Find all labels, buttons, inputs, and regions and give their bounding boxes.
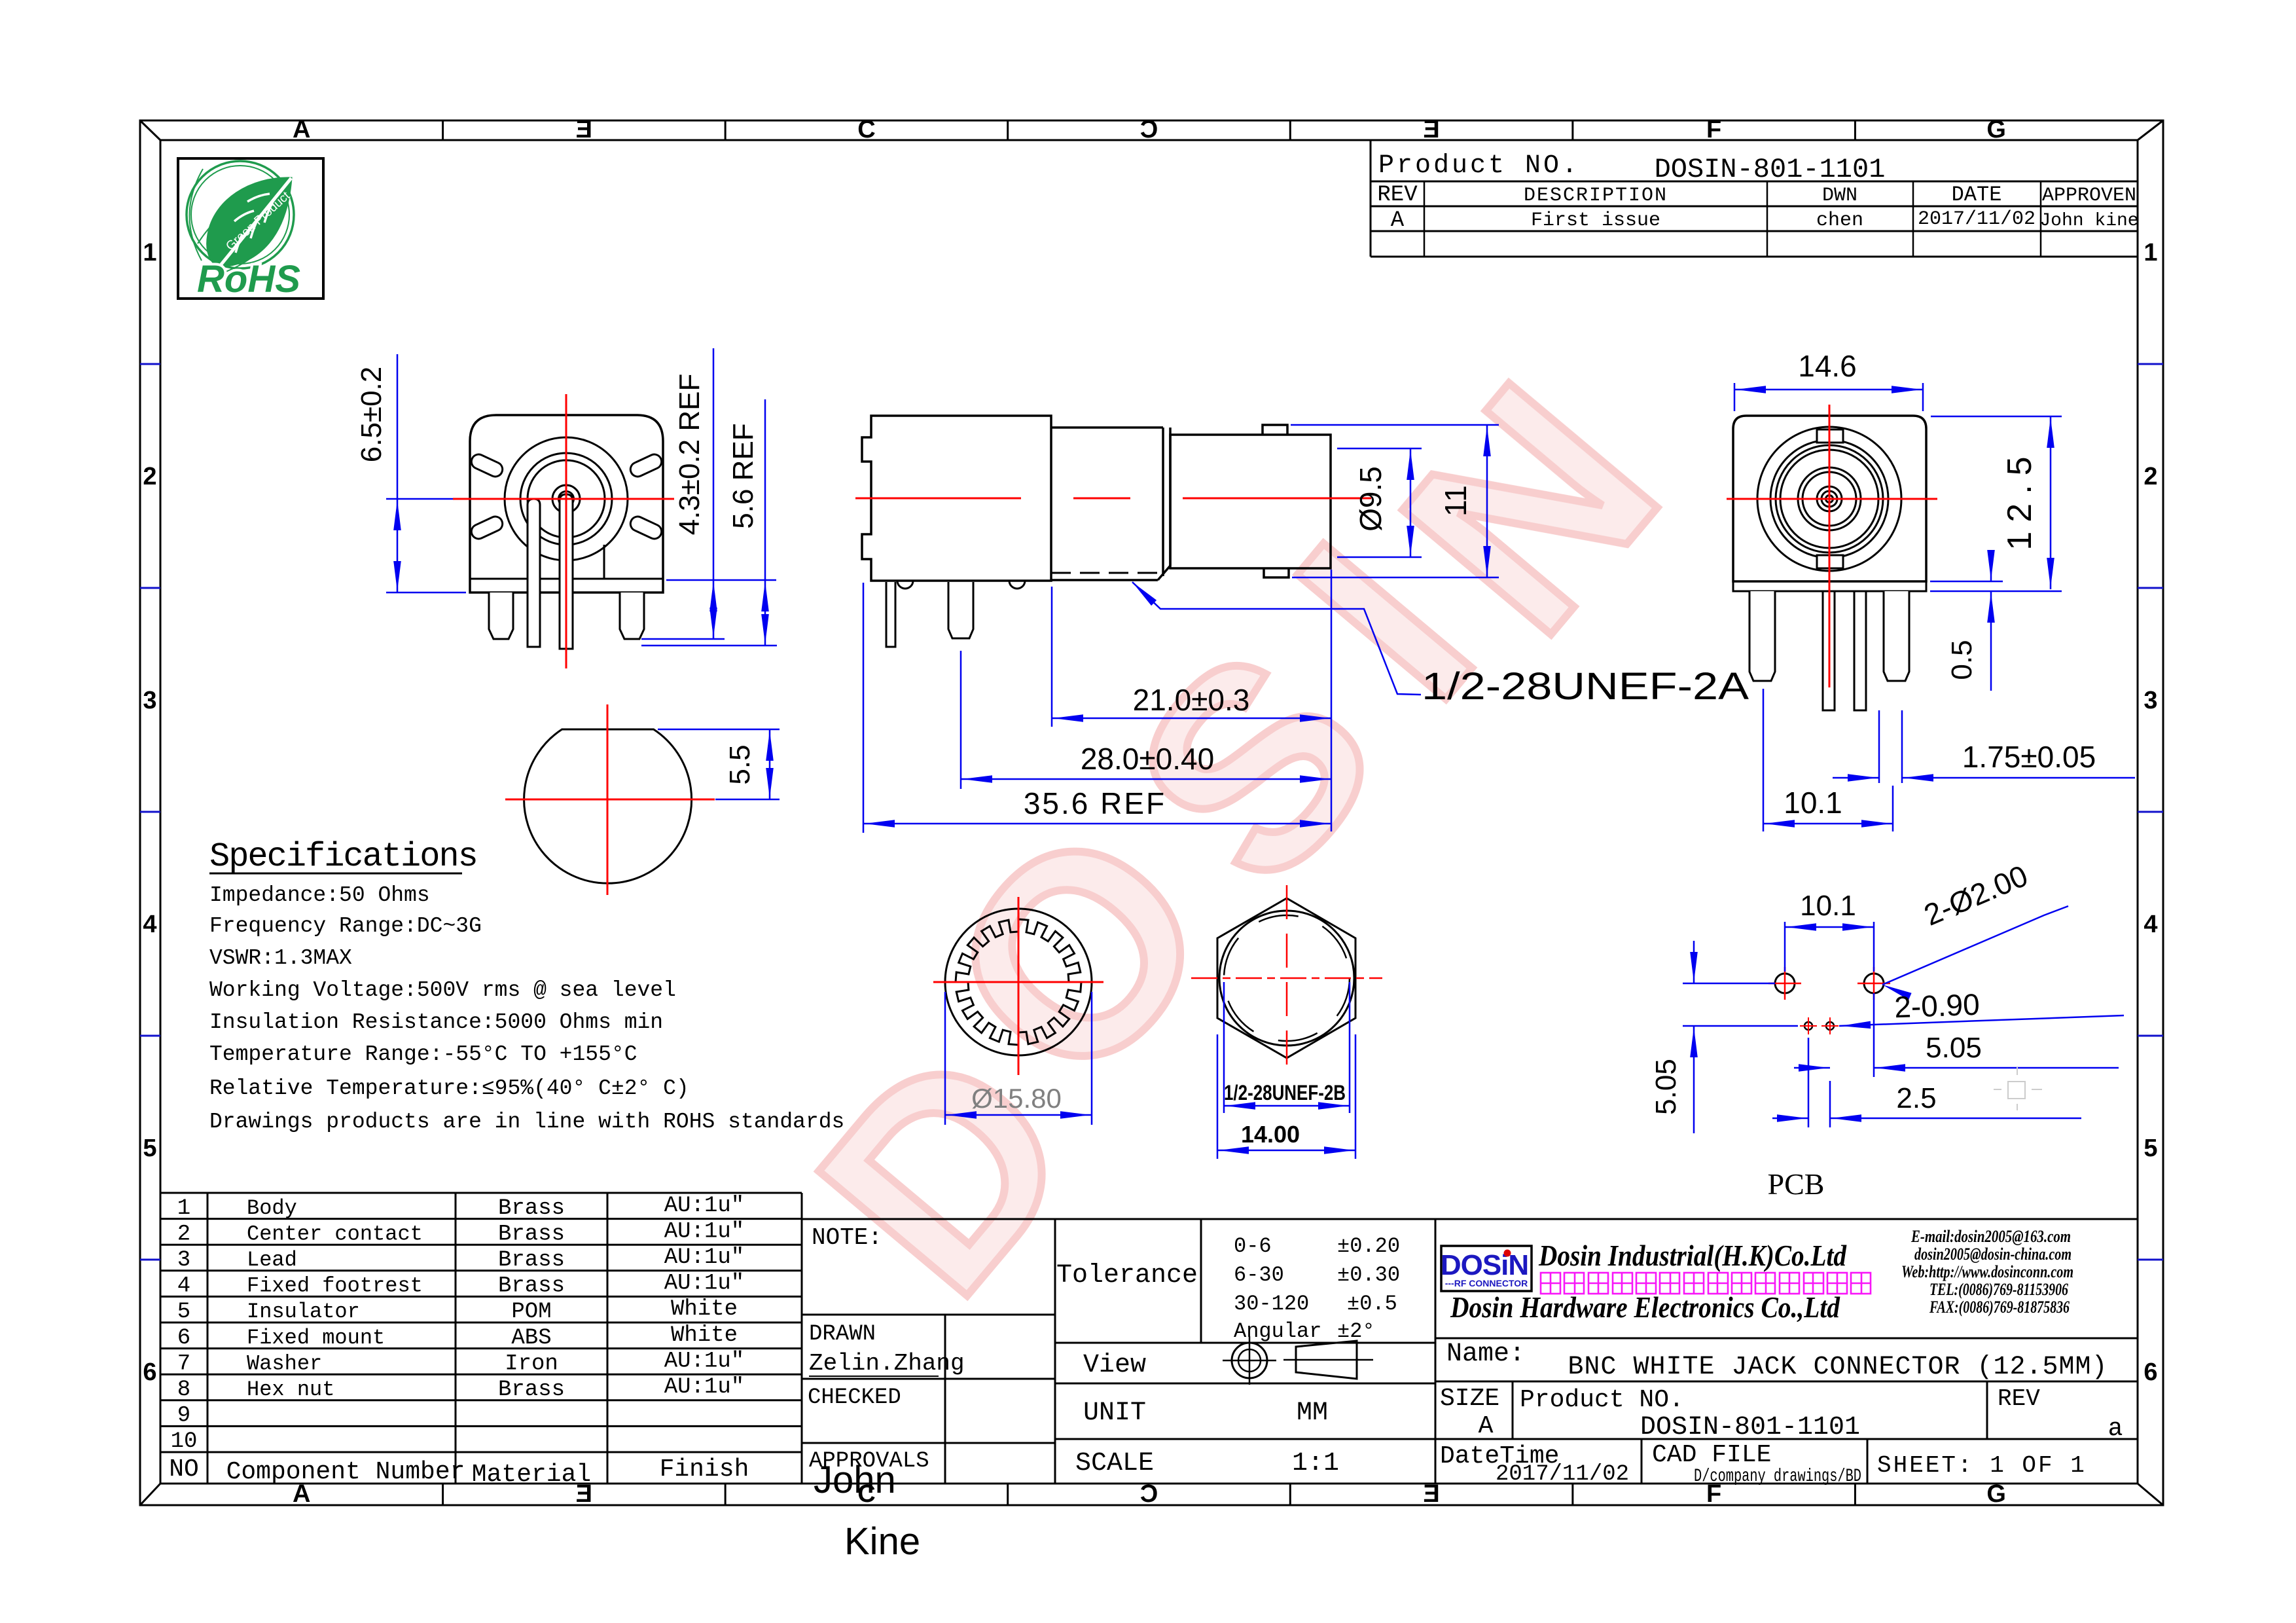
svg-text:D/company drawings/BD: D/company drawings/BD — [1694, 1467, 1861, 1487]
svg-text:E: E — [576, 116, 592, 143]
svg-text:Hex nut: Hex nut — [247, 1377, 334, 1402]
svg-text:Frequency Range:DC~3G: Frequency Range:DC~3G — [209, 914, 482, 938]
svg-text:5.05: 5.05 — [1926, 1032, 1982, 1064]
svg-text:0.5: 0.5 — [1946, 640, 1978, 680]
svg-text:C: C — [857, 116, 875, 143]
svg-text:Tolerance: Tolerance — [1056, 1261, 1198, 1290]
svg-text:DATE: DATE — [1952, 183, 2002, 207]
svg-text:14.00: 14.00 — [1241, 1121, 1300, 1148]
svg-text:Component Number: Component Number — [226, 1458, 465, 1486]
svg-text:a: a — [2108, 1415, 2123, 1443]
svg-text:10.1: 10.1 — [1800, 890, 1856, 922]
svg-text:DWN: DWN — [1822, 185, 1857, 207]
svg-text:Dosin Hardware Electronics Co.: Dosin Hardware Electronics Co.,Ltd — [1450, 1290, 1840, 1324]
svg-text:4: 4 — [177, 1274, 190, 1299]
svg-text:DOSiN: DOSiN — [1441, 1249, 1528, 1281]
svg-text:DRAWN: DRAWN — [809, 1322, 876, 1347]
svg-text:AU:1u": AU:1u" — [664, 1375, 744, 1400]
svg-text:John kine: John kine — [2039, 211, 2138, 231]
svg-text:Name:: Name: — [1446, 1340, 1525, 1369]
svg-text:View: View — [1083, 1351, 1146, 1380]
svg-text:A: A — [293, 116, 310, 143]
svg-text:2.5: 2.5 — [1896, 1082, 1936, 1114]
svg-text:Brass: Brass — [498, 1377, 565, 1402]
svg-text:G: G — [1986, 116, 2006, 143]
svg-text:C: C — [1140, 116, 1158, 143]
svg-text:Impedance:50 Ohms: Impedance:50 Ohms — [209, 883, 430, 907]
svg-text:---RF CONNECTOR: ---RF CONNECTOR — [1445, 1278, 1528, 1288]
svg-text:2: 2 — [143, 463, 156, 490]
svg-text:6: 6 — [177, 1326, 190, 1351]
svg-text:9: 9 — [177, 1404, 190, 1429]
svg-text:CHECKED: CHECKED — [808, 1385, 901, 1410]
svg-text:chen: chen — [1816, 210, 1863, 232]
svg-text:6.5±0.2: 6.5±0.2 — [355, 367, 387, 462]
svg-text:±0.30: ±0.30 — [1337, 1263, 1400, 1287]
svg-text:Product NO.: Product NO. — [1520, 1386, 1684, 1414]
svg-text:12.5: 12.5 — [2001, 447, 2039, 550]
svg-text:AU:1u": AU:1u" — [664, 1245, 744, 1270]
svg-text:E-mail:dosin2005@163.com: E-mail:dosin2005@163.com — [1910, 1227, 2071, 1246]
svg-text:FAX:(0086)769-81875836: FAX:(0086)769-81875836 — [1929, 1298, 2070, 1317]
svg-text:A: A — [1391, 208, 1405, 233]
svg-text:Working Voltage:500V rms @ sea: Working Voltage:500V rms @ sea level — [209, 978, 676, 1002]
svg-text:White: White — [671, 1323, 738, 1348]
svg-text:1/2-28UNEF-2A: 1/2-28UNEF-2A — [1422, 665, 1749, 708]
svg-text:2-0.90: 2-0.90 — [1893, 987, 1980, 1025]
svg-text:1: 1 — [143, 239, 156, 266]
svg-text:6-30: 6-30 — [1234, 1263, 1284, 1287]
svg-text:NO: NO — [169, 1455, 199, 1484]
svg-text:Brass: Brass — [498, 1274, 565, 1299]
svg-text:First issue: First issue — [1531, 210, 1660, 232]
svg-text:Fixed mount: Fixed mount — [247, 1326, 385, 1350]
svg-text:NOTE:: NOTE: — [812, 1224, 882, 1251]
svg-text:DOSIN-801-1101: DOSIN-801-1101 — [1640, 1413, 1860, 1442]
svg-text:Web:http://www.dosinconn.com: Web:http://www.dosinconn.com — [1901, 1262, 2073, 1281]
svg-text:2: 2 — [177, 1222, 190, 1247]
svg-text:2017/11/02: 2017/11/02 — [1496, 1462, 1629, 1487]
svg-text:Specifications: Specifications — [209, 837, 477, 876]
svg-text:3: 3 — [177, 1248, 190, 1273]
svg-text:2-Ø2.00: 2-Ø2.00 — [1919, 858, 2032, 932]
svg-text:White: White — [671, 1297, 738, 1322]
svg-text:1: 1 — [177, 1196, 190, 1221]
svg-text:Center contact: Center contact — [247, 1222, 423, 1246]
svg-text:E: E — [1423, 1480, 1439, 1508]
svg-text:1.75±0.05: 1.75±0.05 — [1962, 740, 2096, 774]
svg-text:Body: Body — [247, 1196, 297, 1220]
svg-text:Dosin Industrial(H.K)Co.Ltd: Dosin Industrial(H.K)Co.Ltd — [1538, 1239, 1847, 1272]
svg-text:Washer: Washer — [247, 1351, 322, 1376]
svg-text:F: F — [1706, 116, 1721, 143]
svg-text:Insulator: Insulator — [247, 1300, 360, 1324]
svg-text:ABS: ABS — [511, 1326, 551, 1351]
svg-text:5: 5 — [177, 1300, 190, 1324]
svg-text:POM: POM — [511, 1300, 551, 1324]
svg-text:4.3±0.2 REF: 4.3±0.2 REF — [673, 374, 706, 536]
svg-text:3: 3 — [2144, 687, 2157, 714]
svg-text:CAD FILE: CAD FILE — [1652, 1441, 1771, 1469]
svg-text:±0.5: ±0.5 — [1347, 1292, 1397, 1316]
svg-text:10: 10 — [171, 1429, 198, 1454]
svg-text:DOSIN-801-1101: DOSIN-801-1101 — [1655, 154, 1886, 185]
svg-text:Fixed footrest: Fixed footrest — [247, 1274, 423, 1298]
svg-text:AU:1u": AU:1u" — [664, 1219, 744, 1244]
svg-text:Ø15.80: Ø15.80 — [971, 1083, 1062, 1114]
svg-text:Brass: Brass — [498, 1222, 565, 1247]
svg-text:BNC WHITE JACK CONNECTOR (12.5: BNC WHITE JACK CONNECTOR (12.5MM) — [1568, 1353, 2108, 1382]
svg-text:4: 4 — [2144, 911, 2157, 938]
svg-text:5: 5 — [143, 1135, 156, 1162]
svg-text:5.05: 5.05 — [1650, 1059, 1682, 1115]
svg-text:PCB: PCB — [1768, 1167, 1825, 1201]
svg-text:6: 6 — [2144, 1359, 2157, 1386]
svg-text:11: 11 — [1439, 485, 1473, 517]
svg-text:35.6 REF: 35.6 REF — [1024, 786, 1166, 820]
svg-text:7: 7 — [177, 1351, 190, 1376]
svg-text:1:1: 1:1 — [1292, 1449, 1339, 1478]
svg-text:SIZE: SIZE — [1440, 1385, 1499, 1413]
svg-text:Temperature Range:-55°C TO +15: Temperature Range:-55°C TO +155°C — [209, 1042, 637, 1067]
svg-text:Product NO.: Product NO. — [1378, 151, 1580, 181]
svg-text:5.6 REF: 5.6 REF — [727, 423, 759, 528]
svg-text:AU:1u": AU:1u" — [664, 1194, 744, 1218]
svg-text:Relative Temperature:≤95%(40°: Relative Temperature:≤95%(40° C±2° C) — [209, 1076, 689, 1101]
svg-text:DESCRIPTION: DESCRIPTION — [1524, 185, 1668, 207]
svg-text:Brass: Brass — [498, 1248, 565, 1273]
svg-text:14.6: 14.6 — [1798, 349, 1857, 383]
svg-text:8: 8 — [177, 1377, 190, 1402]
svg-text:5: 5 — [2144, 1135, 2157, 1162]
svg-text:Ø9.5: Ø9.5 — [1354, 466, 1388, 532]
svg-text:REV: REV — [1998, 1385, 2040, 1412]
svg-text:MM: MM — [1297, 1398, 1328, 1428]
svg-text:Zelin.Zhang: Zelin.Zhang — [809, 1350, 965, 1377]
svg-text:UNIT: UNIT — [1083, 1398, 1146, 1428]
svg-text:Lead: Lead — [247, 1248, 297, 1272]
svg-text:APPROVEN: APPROVEN — [2042, 185, 2136, 207]
svg-text:1: 1 — [2144, 239, 2157, 266]
svg-text:Angular: Angular — [1234, 1319, 1321, 1343]
svg-text:4: 4 — [143, 911, 156, 938]
svg-text:REV: REV — [1377, 183, 1418, 208]
svg-text:RoHS: RoHS — [197, 258, 300, 301]
svg-text:Drawings products are in line: Drawings products are in line with ROHS … — [209, 1110, 844, 1134]
svg-text:2: 2 — [2144, 463, 2157, 490]
svg-text:0-6: 0-6 — [1234, 1234, 1272, 1258]
svg-text:dosin2005@dosin-china.com: dosin2005@dosin-china.com — [1914, 1245, 2072, 1264]
svg-text:21.0±0.3: 21.0±0.3 — [1133, 683, 1250, 717]
svg-text:Iron: Iron — [505, 1351, 558, 1376]
svg-text:±0.20: ±0.20 — [1337, 1234, 1400, 1258]
svg-text:John: John — [814, 1459, 896, 1501]
svg-text:Insulation Resistance:5000 Ohm: Insulation Resistance:5000 Ohms min — [209, 1010, 663, 1034]
svg-text:C: C — [1140, 1480, 1158, 1508]
svg-text:28.0±0.40: 28.0±0.40 — [1081, 742, 1214, 776]
svg-text:Material: Material — [472, 1461, 591, 1489]
svg-text:SCALE: SCALE — [1075, 1449, 1154, 1478]
svg-text:AU:1u": AU:1u" — [664, 1271, 744, 1296]
svg-text:5.5: 5.5 — [724, 744, 756, 784]
svg-text:Brass: Brass — [498, 1196, 565, 1221]
svg-text:6: 6 — [143, 1359, 156, 1386]
svg-text:10.1: 10.1 — [1784, 786, 1842, 820]
svg-text:2017/11/02: 2017/11/02 — [1918, 208, 2036, 230]
svg-text:A: A — [1479, 1412, 1494, 1440]
svg-text:1/2-28UNEF-2B: 1/2-28UNEF-2B — [1224, 1081, 1346, 1104]
svg-text:3: 3 — [143, 687, 156, 714]
svg-text:Kine: Kine — [844, 1520, 920, 1563]
svg-text:TEL:(0086)769-81153906: TEL:(0086)769-81153906 — [1929, 1280, 2068, 1299]
svg-text:SHEET: 1 OF 1: SHEET: 1 OF 1 — [1877, 1452, 2087, 1479]
svg-text:E: E — [1423, 116, 1439, 143]
svg-text:G: G — [1986, 1480, 2006, 1508]
svg-text:AU:1u": AU:1u" — [664, 1349, 744, 1374]
svg-text:30-120: 30-120 — [1234, 1292, 1309, 1316]
svg-text:Finish: Finish — [660, 1455, 749, 1484]
svg-text:VSWR:1.3MAX: VSWR:1.3MAX — [209, 946, 352, 970]
svg-text:±2°: ±2° — [1337, 1319, 1375, 1343]
